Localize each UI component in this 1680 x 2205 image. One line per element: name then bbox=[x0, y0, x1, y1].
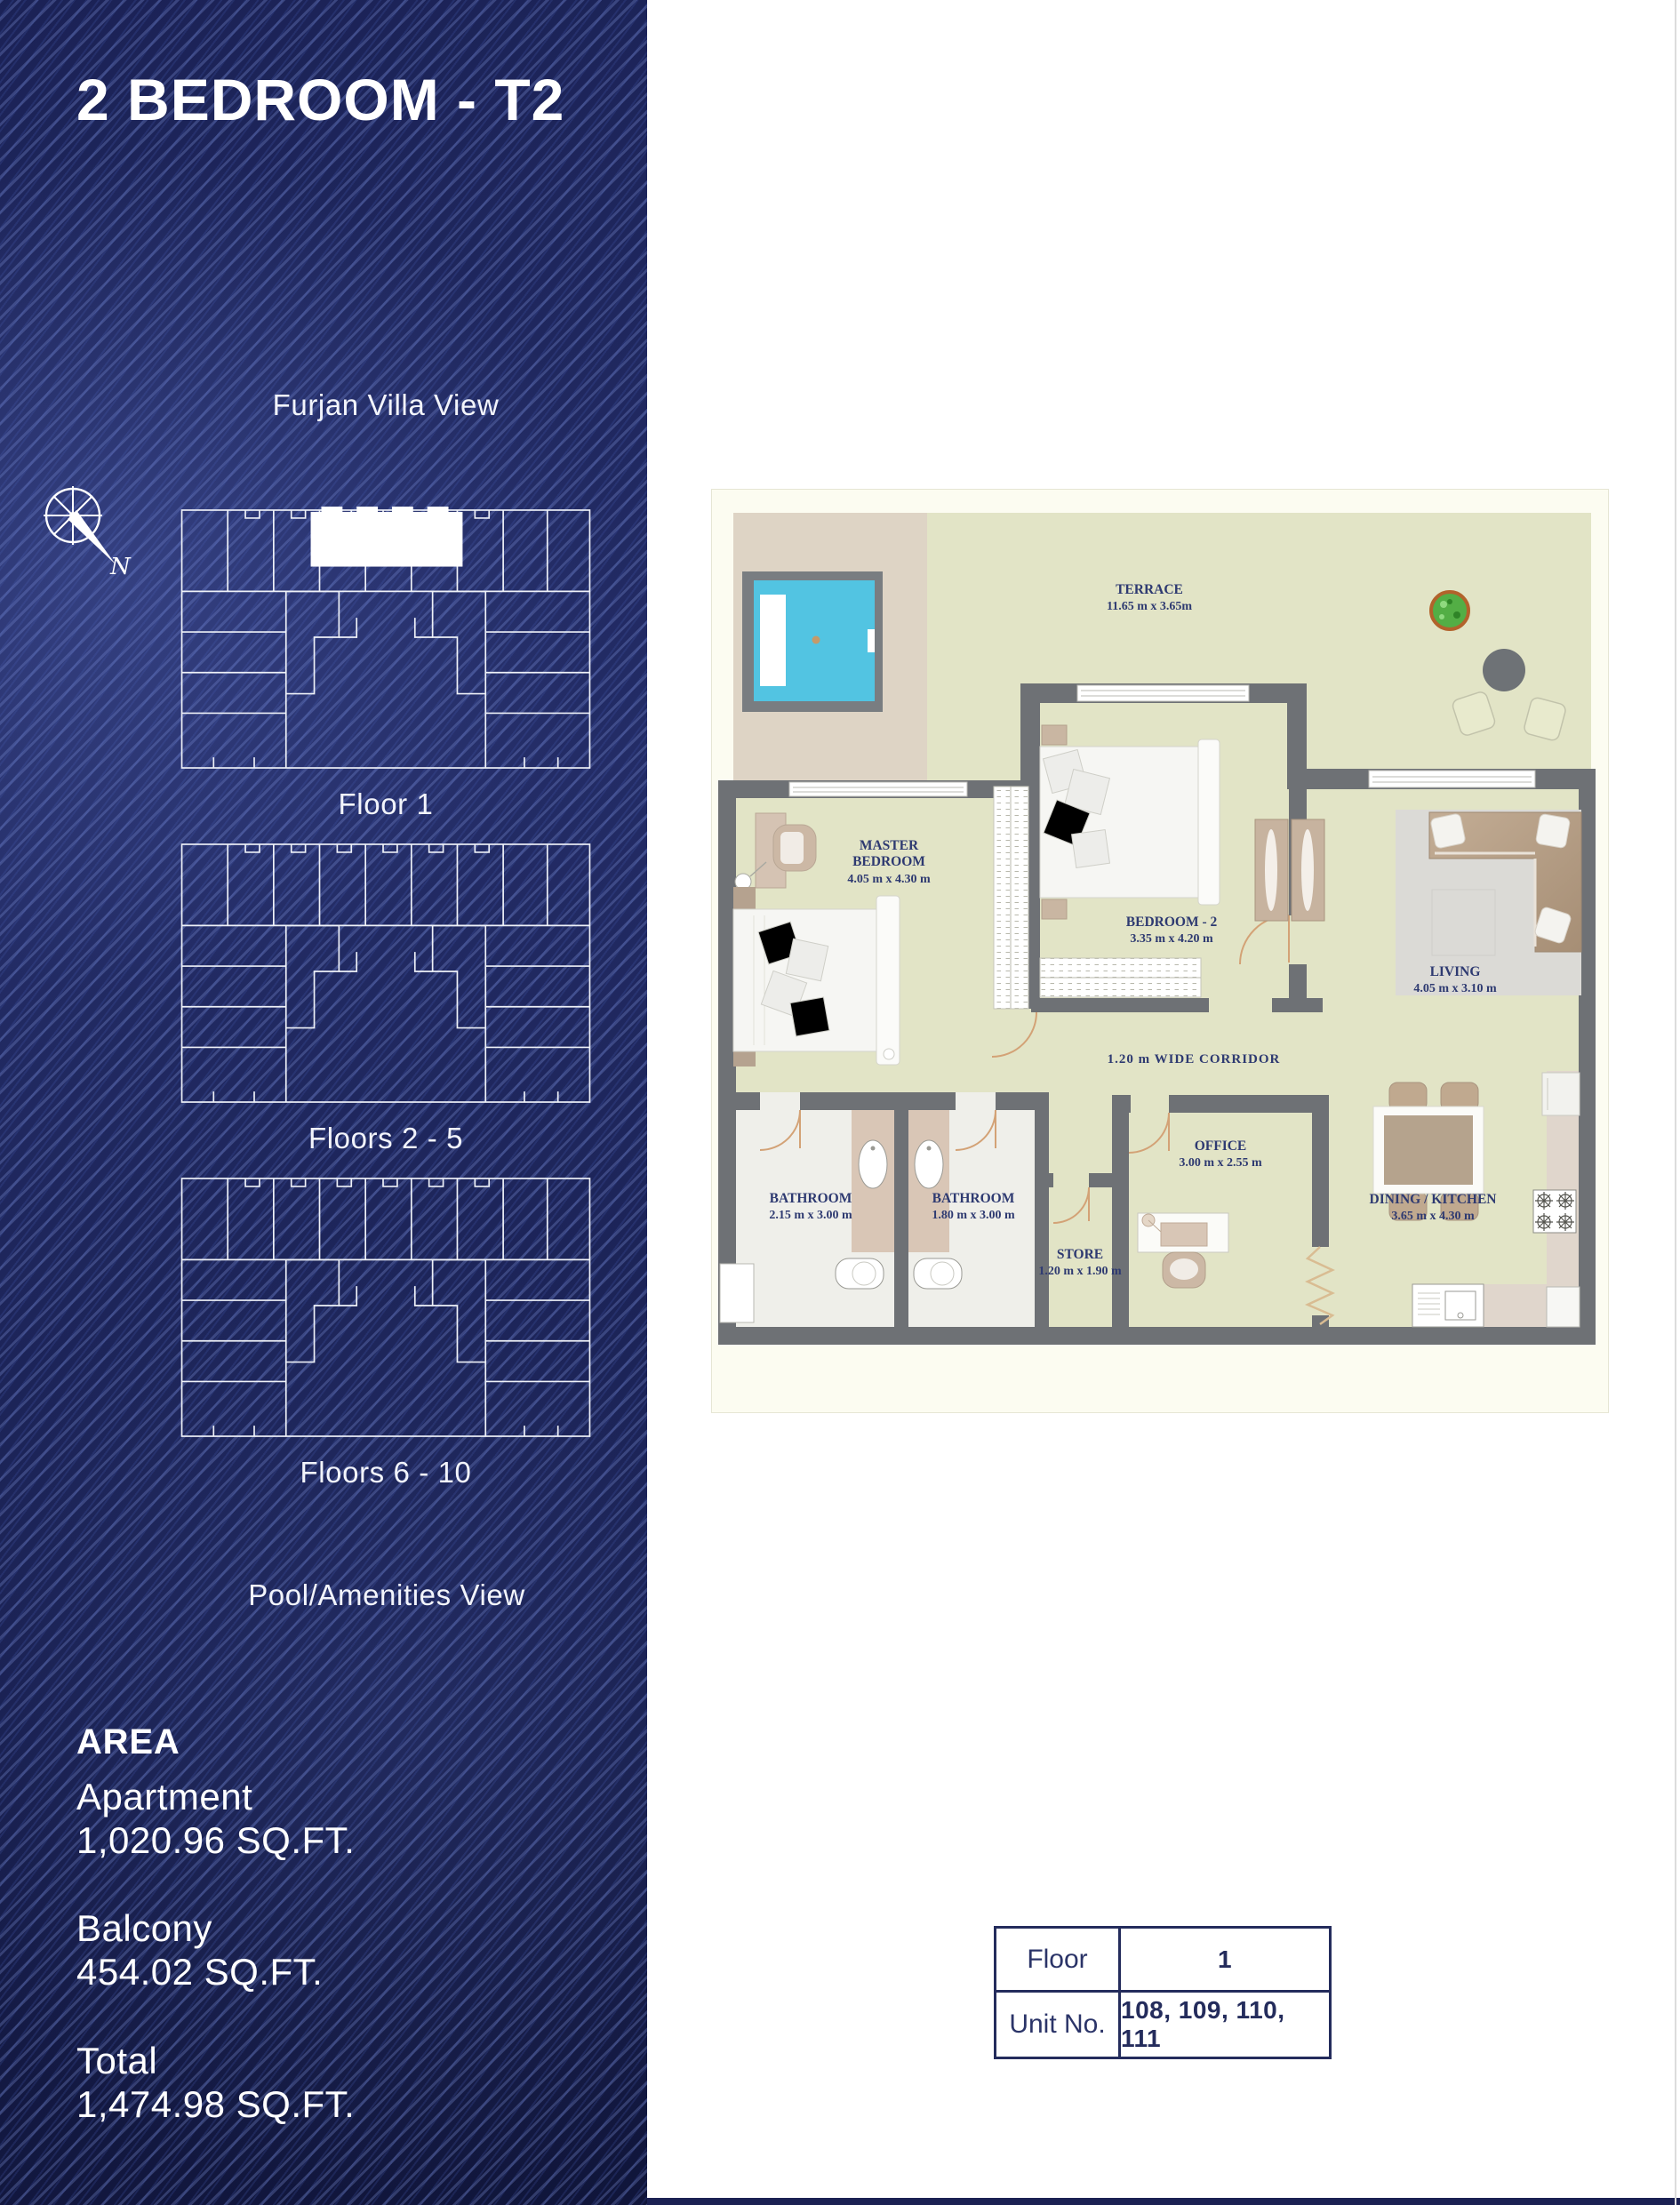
floor-plan: TERRACE 11.65 m x 3.65m MASTER BEDROOM 4… bbox=[711, 489, 1609, 1413]
fridge-icon bbox=[1547, 1287, 1580, 1327]
svg-text:BEDROOM: BEDROOM bbox=[852, 854, 925, 869]
floor-plate-1-label: Floor 1 bbox=[177, 787, 595, 821]
terrace-dims: 11.65 m x 3.65m bbox=[1107, 600, 1192, 613]
bedroom2-dims: 3.35 m x 4.20 m bbox=[1130, 932, 1213, 946]
bottom-accent-bar bbox=[647, 2198, 1680, 2205]
unit-no-value: 108, 109, 110, 111 bbox=[1121, 1993, 1329, 2057]
wall-niche bbox=[733, 887, 756, 909]
page-edge-line bbox=[1675, 0, 1676, 2205]
table-row-unit: Unit No. 108, 109, 110, 111 bbox=[996, 1993, 1329, 2057]
area-heading: AREA bbox=[76, 1722, 355, 1762]
plant-icon bbox=[1431, 592, 1468, 629]
floor-plan-drawing: TERRACE 11.65 m x 3.65m MASTER BEDROOM 4… bbox=[711, 489, 1609, 1413]
sidebar-panel: 2 BEDROOM - T2 Furjan Villa View N bbox=[0, 0, 647, 2205]
floor-plate-2-label: Floors 2 - 5 bbox=[177, 1122, 595, 1155]
bedroom2-label: BEDROOM - 2 bbox=[1126, 915, 1218, 930]
floor-plate-2-diagram bbox=[177, 841, 595, 1106]
office-dims: 3.00 m x 2.55 m bbox=[1179, 1156, 1262, 1170]
kitchen-sink bbox=[1412, 1284, 1484, 1327]
bedroom2-wardrobe bbox=[1040, 958, 1201, 997]
highlighted-units bbox=[311, 507, 463, 567]
office-label: OFFICE bbox=[1195, 1138, 1247, 1154]
floor-plate-3-diagram bbox=[177, 1175, 595, 1440]
table-row-floor: Floor 1 bbox=[996, 1929, 1329, 1993]
area-label: Balcony bbox=[76, 1906, 355, 1950]
area-item-balcony: Balcony 454.02 SQ.FT. bbox=[76, 1906, 355, 1993]
compass-needle bbox=[68, 510, 116, 564]
unit-info-table: Floor 1 Unit No. 108, 109, 110, 111 bbox=[994, 1926, 1332, 2059]
nightstand bbox=[1042, 899, 1067, 919]
master-wardrobe bbox=[994, 787, 1028, 1009]
page-title: 2 BEDROOM - T2 bbox=[76, 66, 564, 133]
pool-view-label: Pool/Amenities View bbox=[133, 1578, 640, 1612]
stove-icon bbox=[1533, 1190, 1576, 1233]
bathroom2-label: BATHROOM bbox=[932, 1191, 1015, 1206]
living-label: LIVING bbox=[1430, 964, 1481, 979]
pool-icon bbox=[742, 571, 883, 712]
store-label: STORE bbox=[1057, 1247, 1103, 1262]
floor-plate-1-diagram bbox=[177, 507, 595, 771]
dining-kitchen-label: DINING / KITCHEN bbox=[1370, 1192, 1497, 1207]
terrace-label: TERRACE bbox=[1116, 582, 1183, 597]
bedroom2-bed bbox=[1040, 739, 1220, 905]
area-value: 454.02 SQ.FT. bbox=[76, 1950, 355, 1993]
unit-no-label: Unit No. bbox=[996, 1993, 1121, 2057]
area-value: 1,474.98 SQ.FT. bbox=[76, 2082, 355, 2126]
dining-kitchen-dims: 3.65 m x 4.30 m bbox=[1391, 1210, 1475, 1223]
area-label: Apartment bbox=[76, 1775, 355, 1818]
bathroom1-dims: 2.15 m x 3.00 m bbox=[769, 1209, 852, 1222]
master-bed bbox=[733, 896, 900, 1065]
compass-icon: N bbox=[34, 475, 133, 579]
floor-value: 1 bbox=[1121, 1929, 1329, 1990]
area-label: Total bbox=[76, 2039, 355, 2082]
corridor-label: 1.20 m WIDE CORRIDOR bbox=[1108, 1052, 1281, 1067]
living-dims: 4.05 m x 3.10 m bbox=[1413, 982, 1497, 995]
floor-plate-3-label: Floors 6 - 10 bbox=[177, 1456, 595, 1490]
master-bedroom-dims: 4.05 m x 4.30 m bbox=[847, 873, 931, 886]
area-item-total: Total 1,474.98 SQ.FT. bbox=[76, 2039, 355, 2126]
master-bedroom-label: MASTER bbox=[860, 838, 919, 853]
compass-north-letter: N bbox=[109, 554, 132, 579]
nightstand bbox=[1042, 725, 1067, 745]
bathroom2-dims: 1.80 m x 3.00 m bbox=[932, 1209, 1015, 1222]
bathroom1-label: BATHROOM bbox=[770, 1191, 852, 1206]
area-item-apartment: Apartment 1,020.96 SQ.FT. bbox=[76, 1775, 355, 1862]
area-summary: AREA Apartment 1,020.96 SQ.FT. Balcony 4… bbox=[76, 1722, 355, 2170]
store-dims: 1.20 m x 1.90 m bbox=[1038, 1265, 1122, 1278]
floor-label: Floor bbox=[996, 1929, 1121, 1990]
area-value: 1,020.96 SQ.FT. bbox=[76, 1818, 355, 1862]
villa-view-label: Furjan Villa View bbox=[177, 388, 595, 422]
